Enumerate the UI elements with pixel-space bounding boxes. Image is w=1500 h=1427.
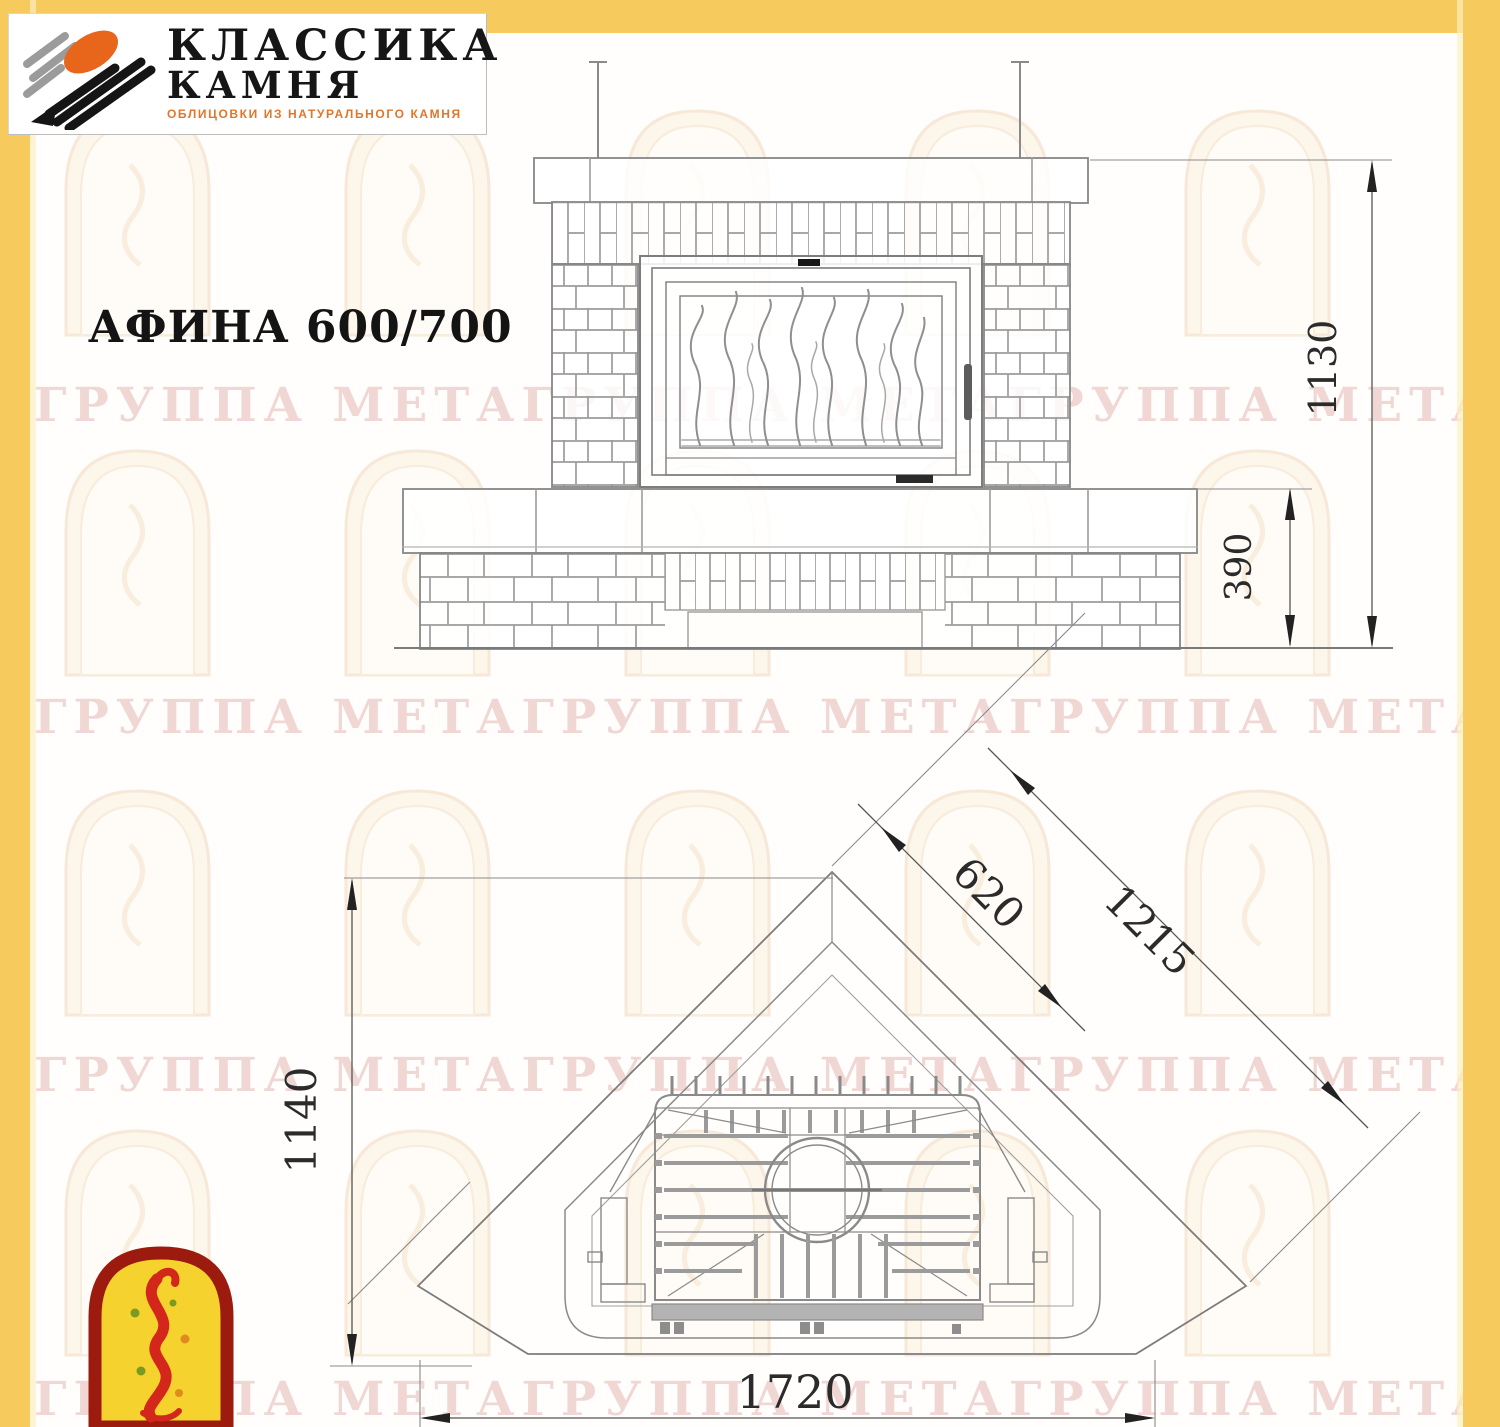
face-width-dim-label: 1215 bbox=[1095, 875, 1205, 985]
insert-front-fender bbox=[652, 1304, 983, 1320]
insert-feet bbox=[660, 1322, 961, 1334]
firebox-front bbox=[640, 256, 982, 487]
door-handle bbox=[964, 364, 972, 420]
hearth-shelf bbox=[403, 489, 1197, 553]
brand-subtitle: ОБЛИЦОВКИ ИЗ НАТУРАЛЬНОГО КАМНЯ bbox=[167, 107, 502, 121]
damper-mark bbox=[798, 259, 820, 266]
left-brick-column bbox=[552, 264, 638, 487]
insert-bottom-ribs bbox=[756, 1234, 886, 1298]
mantel-shelf bbox=[534, 158, 1088, 203]
dim-1130: 1130 bbox=[1301, 160, 1377, 648]
insert-side-ribs bbox=[664, 1136, 970, 1271]
frame-border-right bbox=[1463, 0, 1500, 1427]
wood-niche bbox=[688, 612, 922, 649]
dim-1215: 1215 bbox=[988, 748, 1368, 1128]
brand-name-line2: КАМНЯ bbox=[167, 67, 502, 104]
base-height-dim-label: 390 bbox=[1219, 533, 1260, 602]
brand-name-line1: КЛАССИКА bbox=[167, 27, 502, 67]
chimney-lines bbox=[590, 62, 1028, 158]
dim-390: 390 bbox=[1219, 488, 1295, 647]
plan-depth-dim-label: 1140 bbox=[277, 1067, 326, 1174]
plan-width-dim-label: 1720 bbox=[736, 1365, 853, 1419]
plan-view-drawing bbox=[418, 872, 1246, 1354]
dim-1720: 1720 bbox=[420, 1365, 1155, 1423]
dim-620: 620 bbox=[858, 804, 1085, 1031]
flame-arch-logo-icon bbox=[85, 1243, 237, 1427]
firebox-insert-plan bbox=[652, 1076, 983, 1334]
firebox-front-dim-label: 620 bbox=[943, 848, 1034, 939]
soldier-brick-band bbox=[552, 202, 1070, 264]
poster-page: ГРУППА МЕТАГРУППА МЕТАГРУППА МЕТАГРУППА … bbox=[0, 0, 1500, 1427]
front-height-dim-label: 1130 bbox=[1301, 320, 1345, 417]
brand-logo: КЛАССИКА КАМНЯ ОБЛИЦОВКИ ИЗ НАТУРАЛЬНОГО… bbox=[8, 13, 487, 135]
fireplace-technical-drawing: 1130 390 bbox=[0, 0, 1500, 1427]
dim-1140: 1140 bbox=[277, 878, 357, 1366]
right-brick-column bbox=[984, 264, 1070, 487]
frame-border-left bbox=[0, 0, 30, 1427]
flue-outlet-circle bbox=[752, 1138, 882, 1242]
stone-strokes-logo-icon bbox=[13, 18, 165, 130]
base-masonry bbox=[420, 553, 1180, 649]
model-title: АФИНА 600/700 bbox=[88, 302, 513, 353]
